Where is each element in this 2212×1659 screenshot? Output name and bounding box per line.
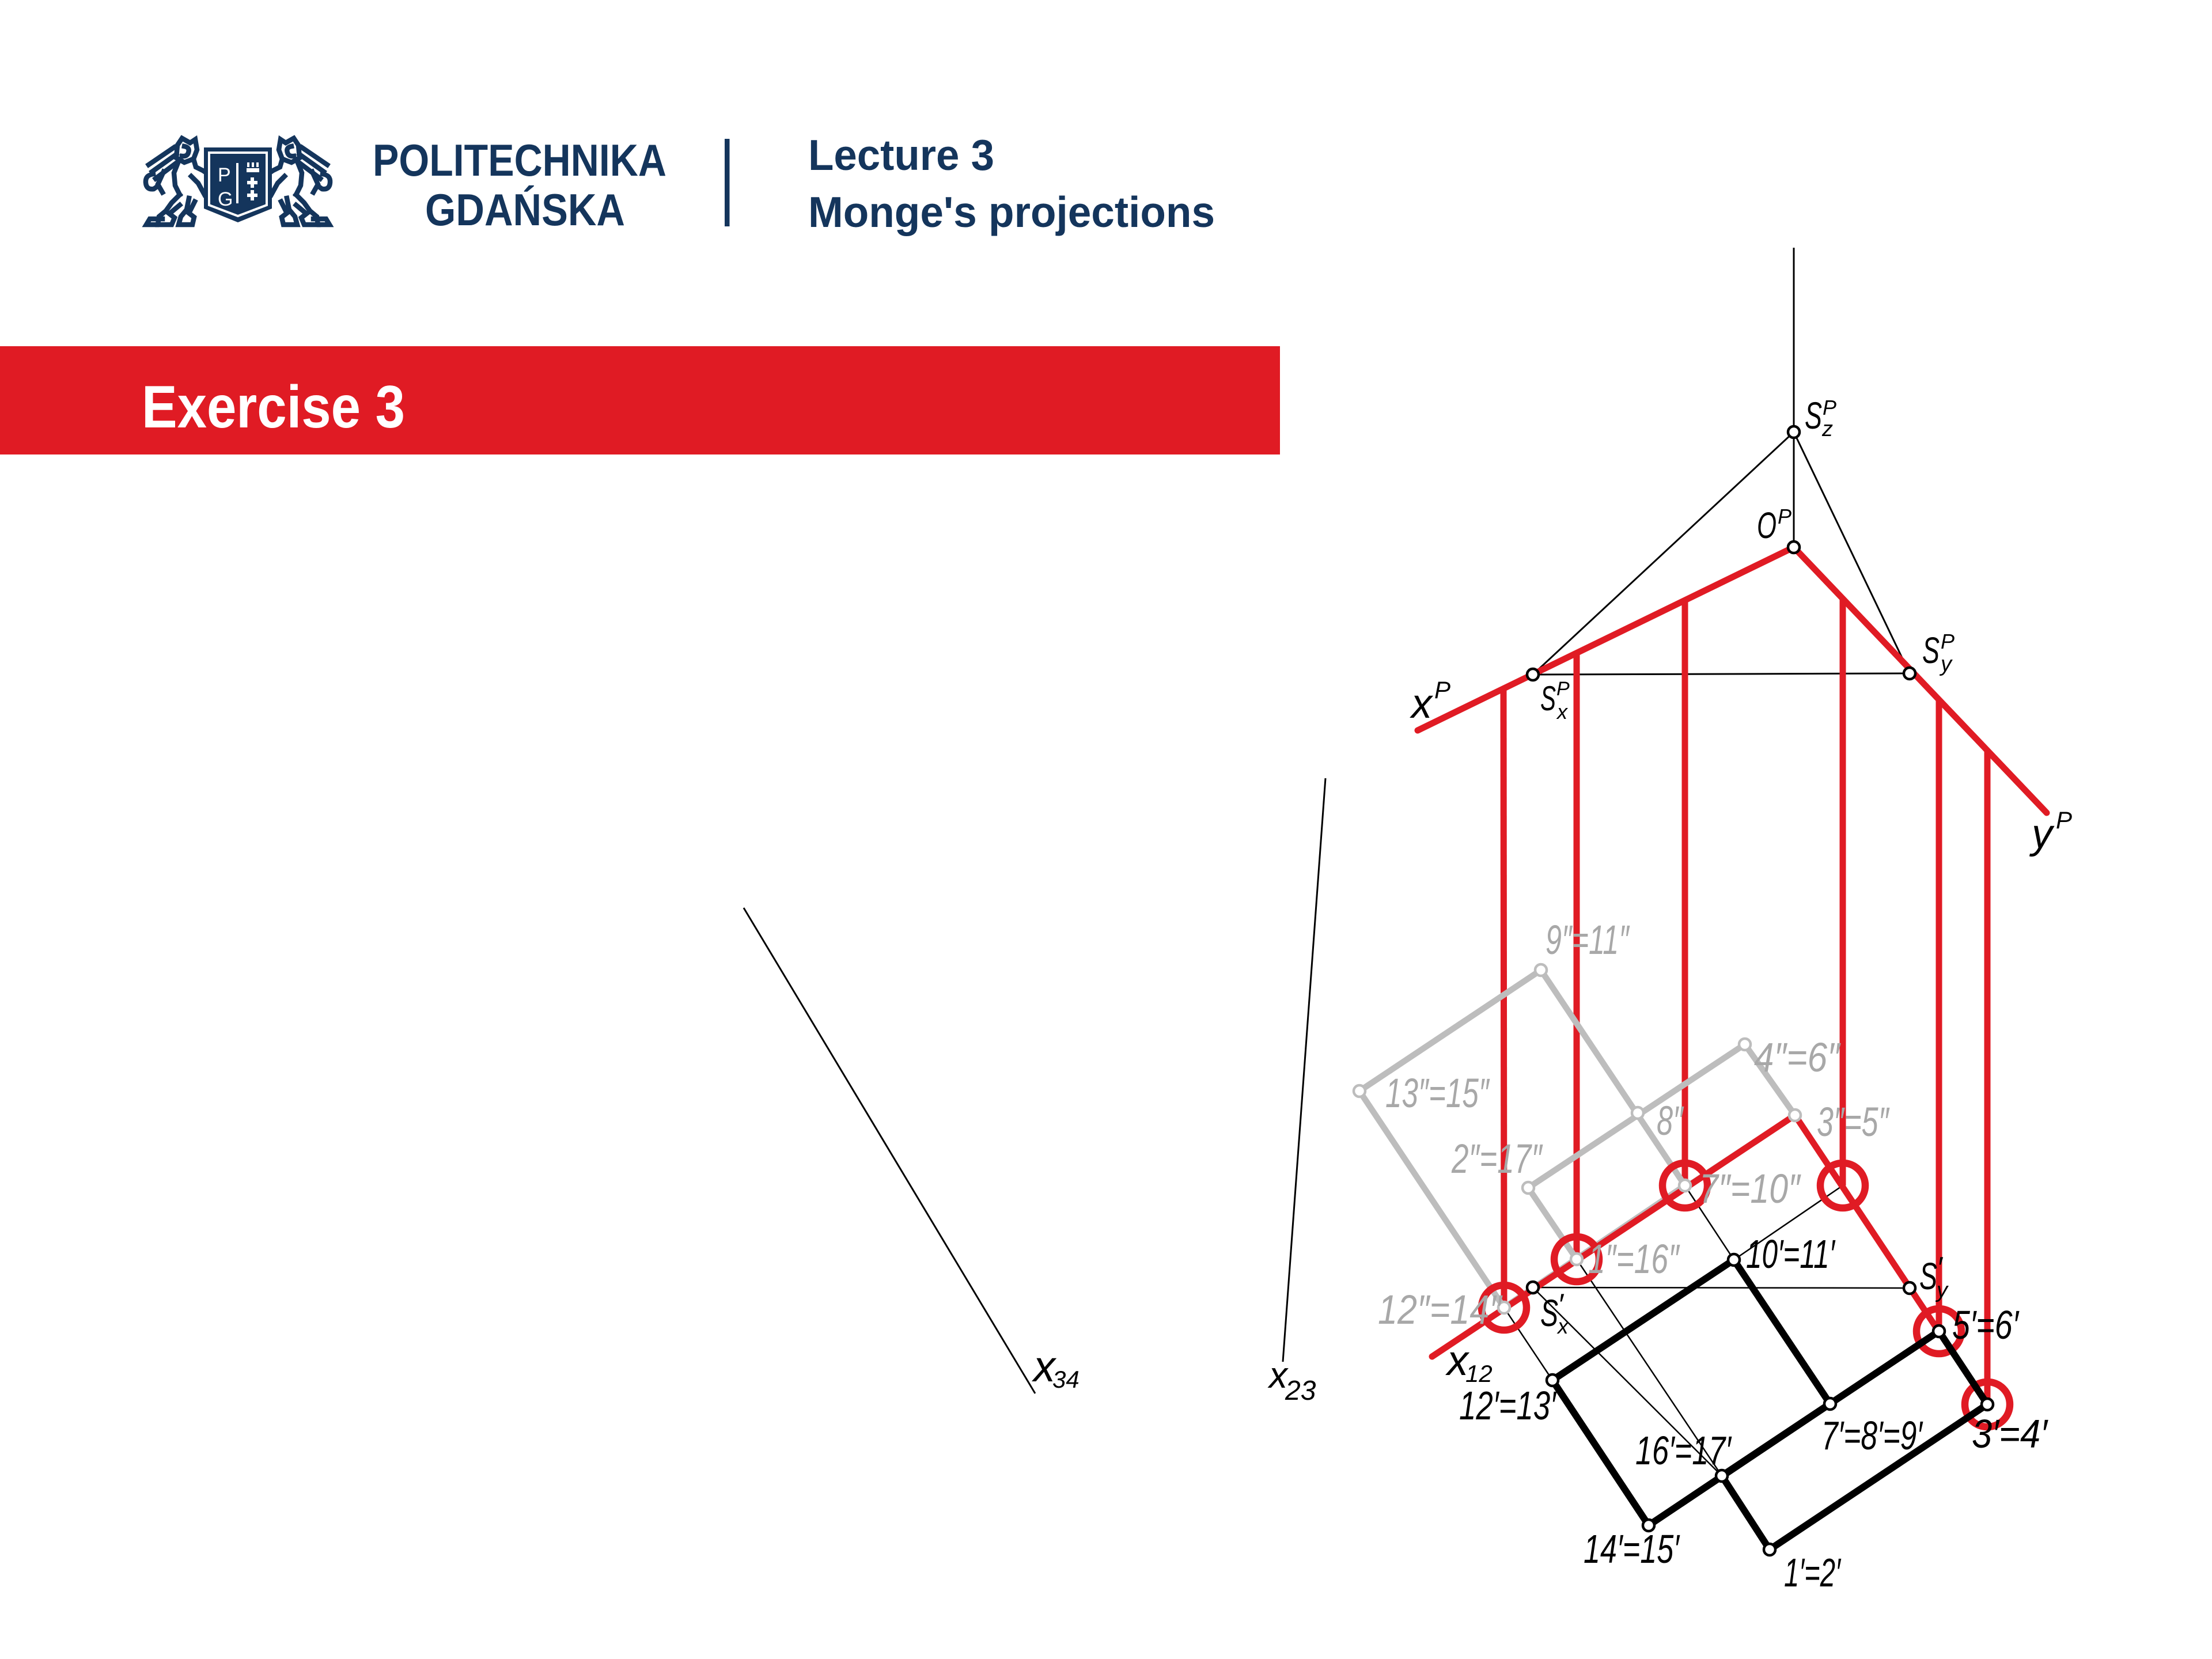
svg-text:POLITECHNIKA: POLITECHNIKA — [373, 135, 666, 185]
svg-text:Monge's projections: Monge's projections — [808, 188, 1215, 236]
svg-text:7″=10″: 7″=10″ — [1699, 1166, 1801, 1212]
svg-text:z: z — [1821, 417, 1833, 441]
svg-text:2″=17″: 2″=17″ — [1451, 1137, 1543, 1182]
svg-text:14′=15′: 14′=15′ — [1584, 1527, 1680, 1571]
svg-text:8″: 8″ — [1657, 1099, 1684, 1144]
svg-text:5′=6′: 5′=6′ — [1952, 1302, 2020, 1347]
svg-text:G: G — [218, 188, 233, 210]
svg-text:3″=5″: 3″=5″ — [1817, 1100, 1890, 1145]
svg-text:7′=8′=9′: 7′=8′=9′ — [1821, 1413, 1923, 1458]
svg-text:12″=14″: 12″=14″ — [1378, 1287, 1503, 1333]
svg-text:P: P — [1556, 678, 1570, 700]
svg-text:3′=4′: 3′=4′ — [1972, 1411, 2049, 1456]
svg-text:x: x — [1410, 681, 1434, 727]
svg-text:P: P — [1941, 630, 1955, 653]
svg-text:P: P — [1823, 396, 1836, 419]
svg-text:23: 23 — [1285, 1376, 1316, 1406]
svg-text:x: x — [1556, 1315, 1569, 1338]
svg-text:P: P — [1434, 676, 1450, 703]
svg-text:1″=16″: 1″=16″ — [1588, 1237, 1680, 1282]
svg-text:y: y — [2029, 811, 2055, 857]
svg-text:4″=6″: 4″=6″ — [1754, 1035, 1841, 1081]
svg-text:S: S — [1919, 1255, 1937, 1297]
svg-text:GDAŃSKA: GDAŃSKA — [425, 184, 625, 235]
svg-text:O: O — [1757, 505, 1777, 546]
svg-text:Lecture 3: Lecture 3 — [808, 131, 994, 179]
svg-text:Exercise 3: Exercise 3 — [142, 374, 405, 441]
svg-text:34: 34 — [1052, 1366, 1080, 1393]
svg-text:P: P — [1778, 505, 1791, 528]
svg-text:13″=15″: 13″=15″ — [1385, 1071, 1490, 1116]
svg-text:y: y — [1935, 1278, 1949, 1302]
svg-text:10′=11′: 10′=11′ — [1746, 1232, 1836, 1277]
svg-text:S: S — [1540, 679, 1556, 718]
svg-text:1′=2′: 1′=2′ — [1784, 1550, 1842, 1595]
svg-text:x: x — [1556, 700, 1569, 724]
svg-text:P: P — [2056, 806, 2072, 834]
svg-text:y: y — [1939, 652, 1953, 676]
svg-text:P: P — [218, 164, 231, 186]
svg-text:S: S — [1922, 630, 1940, 671]
svg-text:S: S — [1540, 1291, 1558, 1334]
svg-text:16′=17′: 16′=17′ — [1635, 1428, 1732, 1473]
svg-text:12′=13′: 12′=13′ — [1459, 1383, 1557, 1428]
svg-text:S: S — [1805, 394, 1822, 437]
svg-text:9″=11″: 9″=11″ — [1546, 918, 1630, 963]
